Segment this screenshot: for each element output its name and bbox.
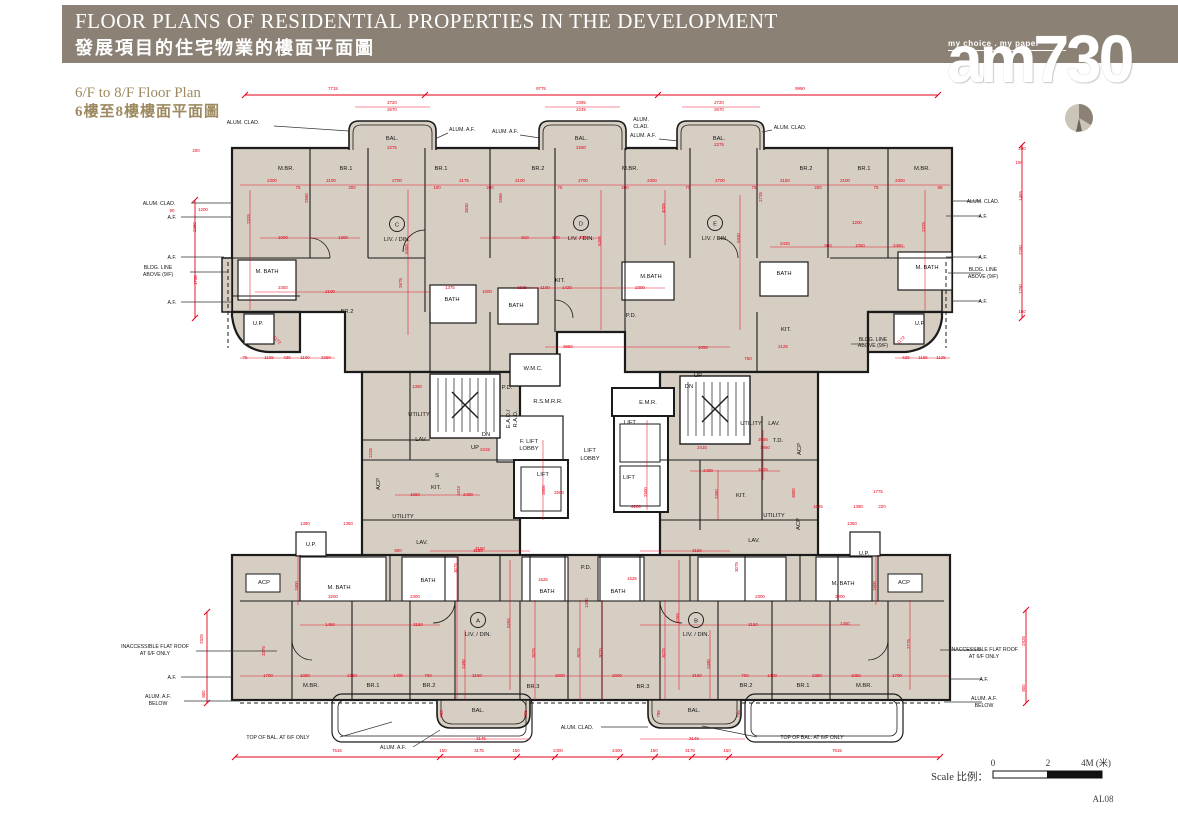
floor-plan-drawing: M.BR.BR.1BR.1BR.2M.BR.BR.2BR.1M.BR.BAL.B… (0, 0, 1178, 826)
room-label: BR.1 (858, 166, 871, 172)
dimension-label: 3075 (734, 562, 739, 572)
annotation-label: ALUM. CLAD. (967, 199, 1000, 205)
dimension-label: 1625 (758, 467, 768, 472)
dimension-label: 200 (486, 185, 494, 190)
dimension-label: 3150 (692, 548, 702, 553)
annotation-label: A.F. (168, 675, 177, 681)
dimension-label: 795 (523, 710, 528, 718)
dimension-label: 2225 (368, 448, 373, 458)
dimension-label: 1650 (410, 492, 420, 497)
dimension-label: 2670 (387, 107, 397, 112)
room-label: LAV. (416, 540, 428, 546)
dimension-label: 1775 (873, 489, 883, 494)
dimension-label: 2400 (553, 748, 563, 753)
dimension-label: 435 (283, 355, 291, 360)
dimension-label: 2300 (267, 178, 277, 183)
dimension-label: 7715 (328, 86, 338, 91)
dimension-label: 700 (424, 673, 432, 678)
dimension-label: 9990 (795, 86, 805, 91)
dimension-label: 2500 (643, 487, 648, 497)
annotation-label: AT 6/F ONLY (140, 651, 171, 657)
dimension-label: 2275 (387, 145, 397, 150)
room-label: UP (694, 373, 702, 379)
annotation-label: ALUM. (633, 117, 649, 123)
annotation-leader-line (340, 722, 392, 737)
room-label: BATH (539, 589, 554, 595)
room-label: U.P. (253, 321, 264, 327)
dimension-label: 2925 (199, 634, 204, 644)
dimension-label: 9775 (536, 86, 546, 91)
building-footprint (222, 148, 952, 728)
room-label: BAL. (688, 708, 701, 714)
room-label: BR.3 (637, 684, 650, 690)
dimension-label: 2925 (1021, 636, 1026, 646)
dimension-label: 2350 (714, 489, 719, 499)
dimension-label: 2350 (812, 673, 822, 678)
dimension-label: 2490 (461, 659, 466, 669)
dimension-label: 200 (348, 185, 356, 190)
dimension-label: 1350 (343, 521, 353, 526)
room-label: U.P. (915, 321, 926, 327)
dimension-label: 1300 (338, 235, 348, 240)
room-label: BATH (610, 589, 625, 595)
room-label: UTILITY (392, 514, 414, 520)
dimension-label: 2275 (714, 142, 724, 147)
dimension-label: 2300 (755, 594, 765, 599)
dimension-label: 3025 (598, 648, 603, 658)
room-label: M. BATH (327, 585, 350, 591)
annotation-label: ALUM. CLAD. (561, 725, 594, 731)
annotation-label: A.F. (979, 299, 988, 305)
dimension-label: 3025 (661, 648, 666, 658)
dimension-label: 1200 (852, 220, 862, 225)
room-label: BAL. (575, 136, 588, 142)
dimension-label: 1420 (562, 285, 572, 290)
dimension-label: 90 (938, 185, 943, 190)
dimension-label: 3950 (563, 344, 573, 349)
page: FLOOR PLANS OF RESIDENTIAL PROPERTIES IN… (0, 0, 1178, 826)
room-label: E.M.R. (639, 400, 657, 406)
annotation-label: ALUM. A.F. (630, 133, 656, 139)
dimension-label: 1100 (540, 285, 550, 290)
annotation-leader-line (437, 133, 448, 138)
dimension-label: 150 (650, 748, 658, 753)
dimension-label: 2500 (554, 490, 564, 495)
annotation-label: CLAD. (633, 124, 648, 130)
dimension-label: 2700 (715, 178, 725, 183)
room-label: UTILITY (408, 412, 430, 418)
dimension-label: 1350 (847, 521, 857, 526)
dimension-label: 2245 (576, 107, 586, 112)
annotation-label: ALUM. A.F. (971, 696, 997, 702)
room-label: BR.1 (340, 166, 353, 172)
scale-bar: Scale 比例： 0 2 4M (米) (931, 757, 1111, 783)
dimension-label: 75 (874, 185, 879, 190)
dimension-label: 2100 (326, 178, 336, 183)
annotation-label: A.F. (980, 677, 989, 683)
room-label: LIFT (537, 472, 549, 478)
room-label: DN (482, 432, 490, 438)
dimension-label: 2350 (347, 673, 357, 678)
dimension-label: 2100 (515, 178, 525, 183)
dimension-label: 2150 (780, 178, 790, 183)
room-label: LIFT (584, 448, 596, 454)
annotation-leader-line (413, 730, 440, 747)
dimension-label: 1465 (1018, 191, 1023, 201)
dimension-label: 220 (878, 504, 886, 509)
dimension-label: 3145 (476, 736, 486, 741)
dimension-label: 730 (579, 235, 587, 240)
room-label: BR.2 (341, 309, 354, 315)
room-label: E.A.D./ (506, 409, 512, 428)
dimension-label: 2325 (921, 222, 926, 232)
room-label: M. BATH (255, 269, 278, 275)
dimension-label: 200 (621, 185, 629, 190)
dimension-label: 75 (296, 185, 301, 190)
dimension-label: 2200 (631, 504, 641, 509)
scale-label: Scale 比例： (931, 770, 988, 783)
room-label: BATH (420, 578, 435, 584)
dimension-label: 2490 (706, 659, 711, 669)
dimension-label: 2250 (192, 222, 197, 232)
dimension-label: 5265 (506, 618, 511, 628)
dimension-label: 2419 (480, 447, 490, 452)
page-code: AL08 (1093, 794, 1114, 804)
room-label: P.D. (581, 565, 592, 571)
dimension-label: 2555 (498, 193, 503, 203)
annotation-label: TOP OF BAL. AT 6/F ONLY (246, 735, 310, 741)
dimension-label: 75 (243, 355, 248, 360)
room-label: ACP (797, 443, 803, 455)
room-label: KIT. (431, 485, 441, 491)
dimension-label: 3150 (748, 622, 758, 627)
dimension-label: 1350 (584, 598, 589, 608)
dimension-label: 5930 (736, 233, 741, 243)
dimension-label: 1960 (760, 445, 770, 450)
dimension-label: 2775 (906, 639, 911, 649)
dimension-label: 1750 (193, 275, 198, 285)
dimension-label: 750 (744, 356, 752, 361)
room-label: KIT. (736, 493, 746, 499)
room-label: M.BATH (640, 274, 661, 280)
room-label: BAL. (472, 708, 485, 714)
dimension-label: 1100 (300, 355, 310, 360)
dimension-label: 700 (741, 673, 749, 678)
annotation-leader-line (274, 126, 349, 131)
dimension-label: 1165 (918, 355, 928, 360)
dimension-label: 6355 (597, 236, 602, 246)
room-label: F. LIFT (520, 439, 538, 445)
room-label: M.BR. (303, 683, 319, 689)
room-label: BATH (508, 303, 523, 309)
dimension-label: 795 (439, 710, 444, 718)
dimension-label: 5265 (675, 613, 680, 623)
dimension-label: 4050 (698, 345, 708, 350)
dimension-label: 795 (736, 710, 741, 718)
dimension-label: 1050 (300, 673, 310, 678)
dimension-label: 1200 (198, 207, 208, 212)
dimension-label: 3200 (328, 594, 338, 599)
logo-dial-icon (1065, 104, 1093, 132)
room-label: LIV. / DIN. (465, 632, 492, 638)
dimension-label: 2300 (410, 594, 420, 599)
dimension-label: 1380 (853, 504, 863, 509)
room-label: M.BR. (622, 166, 638, 172)
dimension-label: 2300 (635, 285, 645, 290)
room-label: BR.2 (532, 166, 545, 172)
room-label: M.BR. (856, 683, 872, 689)
dimension-label: 1525 (627, 576, 637, 581)
dimension-label: 2725 (758, 192, 763, 202)
room-label: T.D. (773, 438, 784, 444)
room-label: UP (471, 445, 479, 451)
dimension-label: 2000 (612, 673, 622, 678)
annotation-label: ALUM. A.F. (380, 745, 406, 751)
dimension-label: 2720 (714, 100, 724, 105)
dimension-label: 2400 (463, 492, 473, 497)
dimension-label: 2675 (398, 278, 403, 288)
room-label: BR.2 (423, 683, 436, 689)
dimension-label: 1525 (538, 577, 548, 582)
dimension-label: 3075 (453, 563, 458, 573)
room-label: P.D. (502, 385, 513, 391)
room-label: R.A.D. (513, 410, 519, 427)
room-label: ACP (376, 478, 382, 490)
room-label: BR.1 (797, 683, 810, 689)
room-label: LIV. / DIN. (702, 236, 729, 242)
dimension-label: 3150 (692, 673, 702, 678)
room-label: M. BATH (915, 265, 938, 271)
dimension-label: 1700 (892, 673, 902, 678)
room-label: DN (685, 384, 693, 390)
room-label: BR.1 (367, 683, 380, 689)
annotation-label: ALUM. A.F. (492, 129, 518, 135)
dimension-label: 910 (521, 235, 529, 240)
room-label: U.P. (306, 542, 317, 548)
annotation-label: INACCESSIBLE FLAT ROOF (121, 644, 189, 650)
room-label: BR.3 (527, 684, 540, 690)
dimension-label: 1800 (872, 581, 877, 591)
dimension-label: 2300 (895, 178, 905, 183)
dimension-label: 800 (201, 690, 206, 698)
annotation-label: A.F. (168, 300, 177, 306)
dimension-label: 2300 (647, 178, 657, 183)
dimension-label: 6355 (404, 244, 409, 254)
annotation-label: ALUM. CLAD. (774, 125, 807, 131)
annotation-label: ALUM. CLAD. (227, 120, 260, 126)
room-label: R.S.M.R.R. (533, 399, 563, 405)
room-label: UTILITY (763, 513, 785, 519)
dimension-label: 7615 (832, 748, 842, 753)
annotation-label: TOP OF BAL. AT 6/F ONLY (780, 735, 844, 741)
dimension-label: 2046 (758, 437, 768, 442)
dimension-label: 635 (902, 355, 910, 360)
room-label: BR.1 (435, 166, 448, 172)
room-label: LAV. (748, 538, 760, 544)
dimension-label: 3175 (685, 748, 695, 753)
room-label: LIV. / DIN. (683, 632, 710, 638)
annotation-label: A.F. (168, 255, 177, 261)
dimension-label: 3145 (689, 736, 699, 741)
dimension-label: 4005 (661, 203, 666, 213)
room-label: M.BR. (278, 166, 294, 172)
dimension-label: 2670 (714, 107, 724, 112)
room-label: M.BR. (914, 166, 930, 172)
room-label: BR.2 (800, 166, 813, 172)
dimension-label: 2700 (578, 178, 588, 183)
annotation-label: A.F. (979, 214, 988, 220)
unit-badge-letter: D (579, 221, 583, 227)
dimension-label: 2450 (893, 243, 903, 248)
dimension-label: 2400 (703, 468, 713, 473)
dimension-label: 1125 (936, 355, 946, 360)
unit-badge-letter: E (713, 221, 717, 227)
dimension-label: 200 (814, 185, 822, 190)
annotation-label: ABOVE (9/F) (858, 343, 889, 349)
room-label: LIFT (623, 475, 635, 481)
unit-badge-letter: C (395, 222, 399, 228)
dimension-label: 200 (192, 148, 200, 153)
dimension-label: 2450 (278, 285, 288, 290)
room-label: KIT. (781, 327, 791, 333)
room-label: W.M.C. (524, 366, 543, 372)
annotation-label: A.F. (168, 215, 177, 221)
room-label: BR.2 (740, 683, 753, 689)
room-label: BATH (776, 271, 791, 277)
annotation-label: ALUM. CLAD. (143, 201, 176, 207)
room-label: ACP (258, 580, 270, 586)
room-label: KIT. (555, 278, 565, 284)
unit-badge-letter: A (476, 618, 480, 624)
dimension-label: 2175 (459, 178, 469, 183)
dimension-label: 2720 (387, 100, 397, 105)
dimension-label: 3800 (791, 488, 796, 498)
dimension-label: 1000 (482, 289, 492, 294)
annotation-leader-line (659, 139, 678, 141)
dimension-label: 2550 (304, 193, 309, 203)
dimension-label: 3175 (474, 748, 484, 753)
room-label: LAV. (415, 437, 427, 443)
dimension-label: 7615 (332, 748, 342, 753)
annotation-leader-line (520, 135, 540, 138)
dimension-label: 1000 (278, 235, 288, 240)
scale-tick-4m: 4M (米) (1081, 757, 1111, 768)
room-label: UTILITY (740, 421, 762, 427)
dimension-label: 2395 (576, 100, 586, 105)
annotation-label: BLDG. LINE (144, 265, 173, 271)
dimension-label: 2325 (246, 214, 251, 224)
dimension-label: 1623 (456, 486, 461, 496)
scale-tick-0: 0 (991, 758, 996, 768)
dimension-label: 75 (686, 185, 691, 190)
dimension-label: 1450 (325, 622, 335, 627)
dimension-label: 900 (394, 548, 402, 553)
annotation-label: BELOW (975, 703, 994, 709)
dimension-label: 75 (752, 185, 757, 190)
dimension-label: 3200 (835, 594, 845, 599)
dimension-label: 2125 (778, 344, 788, 349)
room-label: LIV. / DIN. (384, 237, 411, 243)
room-label: M. BATH (831, 581, 854, 587)
dimension-label: 3150 (473, 548, 483, 553)
dimension-label: 1700 (263, 673, 273, 678)
dimension-label: 150 (512, 748, 520, 753)
room-label: LIFT (624, 420, 636, 426)
dimension-label: 800 (1021, 684, 1026, 692)
dimension-label: 2250 (321, 355, 331, 360)
room-label: ACP (796, 518, 802, 530)
unit-badge-letter: B (694, 618, 698, 624)
room-label: S (435, 473, 439, 479)
dimension-label: 3025 (576, 648, 581, 658)
room-label: LAV. (768, 421, 780, 427)
dimension-label: 150 (723, 748, 731, 753)
annotation-label: ALUM. A.F. (449, 127, 475, 133)
room-label: LOBBY (580, 456, 599, 462)
room-label: LOBBY (519, 446, 538, 452)
dimension-label: 1165 (264, 355, 274, 360)
dimension-label: 1400 (767, 673, 777, 678)
scale-tick-2: 2 (1046, 758, 1051, 768)
dimension-label: 100 (1015, 160, 1023, 165)
dimension-label: 75 (558, 185, 563, 190)
dimension-label: 2700 (392, 178, 402, 183)
annotation-label: ALUM. A.F. (145, 694, 171, 700)
dimension-label: 100 (433, 185, 441, 190)
dimension-label: 2400 (612, 748, 622, 753)
dimension-label: 1750 (1018, 284, 1023, 294)
annotation-label: AT 6/F ONLY (969, 654, 1000, 660)
room-label: U.P. (859, 551, 870, 557)
annotation-label: BLDG. LINE (969, 267, 998, 273)
annotation-label: A.F. (979, 255, 988, 261)
annotation-label: BELOW (149, 701, 168, 707)
room-label: P.D. (626, 313, 637, 319)
dimension-label: 150 (1018, 309, 1026, 314)
dimension-label: 2250 (1018, 245, 1023, 255)
dimension-label: 90 (170, 208, 175, 213)
dimension-label: 1375 (445, 285, 455, 290)
dimension-label: 2250 (576, 145, 586, 150)
dimension-label: 3530 (464, 203, 469, 213)
dimension-label: 3025 (531, 648, 536, 658)
room-label: BATH (444, 297, 459, 303)
dimension-label: 540 (552, 235, 560, 240)
dimension-label: 150 (439, 748, 447, 753)
dimension-label: 1050 (855, 243, 865, 248)
dimension-label: 3150 (413, 622, 423, 627)
room-label: ACP (898, 580, 910, 586)
dimension-label: 2100 (325, 289, 335, 294)
dimension-label: 1625 (813, 504, 823, 509)
dimension-label: 2425 (780, 241, 790, 246)
annotation-label: ABOVE (9/F) (143, 272, 174, 278)
dimension-label: 1350 (412, 384, 422, 389)
room-label: BAL. (386, 136, 399, 142)
dimension-label: 1800 (294, 581, 299, 591)
annotation-label: ABOVE (9/F) (968, 274, 999, 280)
dimension-label: 2415 (697, 445, 707, 450)
dimension-label: 1050 (851, 673, 861, 678)
dimension-label: 1525 (517, 285, 527, 290)
dimension-label: 1400 (393, 673, 403, 678)
dimension-label: 200 (1018, 146, 1026, 151)
dimension-label: 2000 (555, 673, 565, 678)
dimension-label: 3500 (541, 485, 546, 495)
dimension-label: 3150 (472, 673, 482, 678)
dimension-label: 2100 (840, 178, 850, 183)
dimension-label: 1380 (300, 521, 310, 526)
